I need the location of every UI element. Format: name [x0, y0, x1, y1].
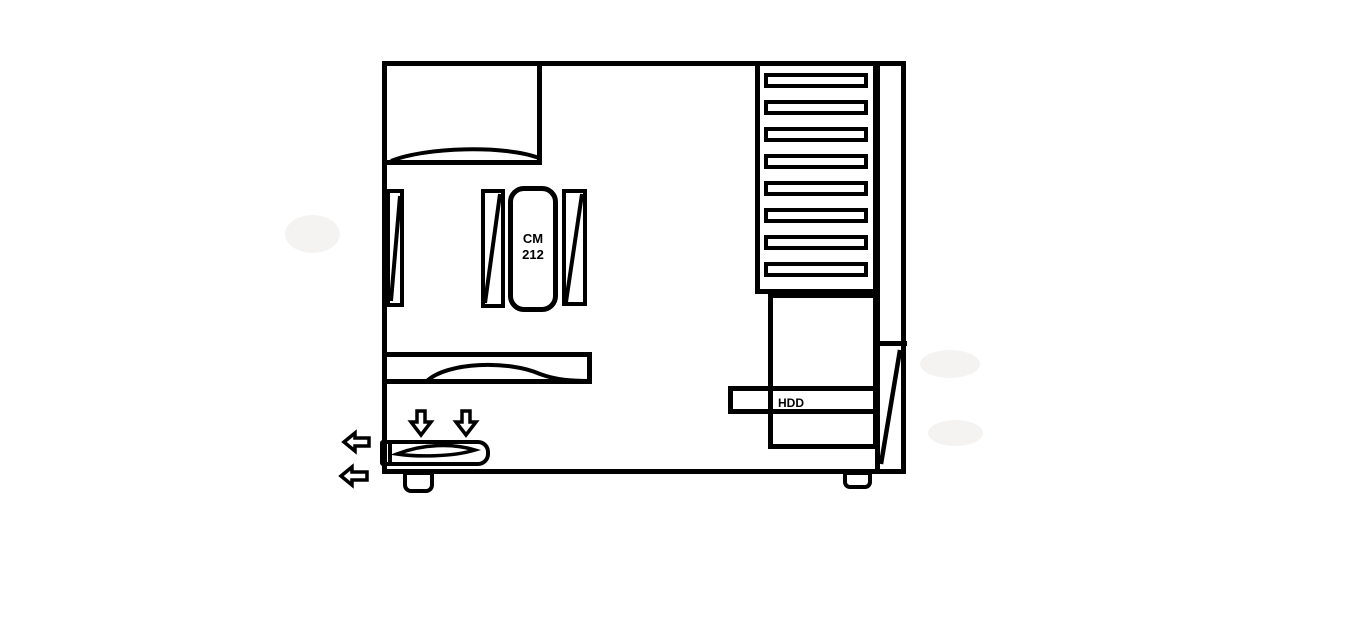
left-arrow-icon — [344, 433, 369, 451]
front-fan — [481, 189, 505, 308]
case-foot-right — [843, 471, 872, 489]
left-arrow-icon — [341, 467, 367, 485]
rear-fan — [562, 189, 587, 306]
hdd-cage — [768, 293, 878, 449]
hdd-label: HDD — [778, 396, 804, 410]
intake-slot — [380, 440, 490, 466]
bay-slat — [764, 208, 868, 223]
bay-slat — [764, 73, 868, 88]
bay-slat — [764, 181, 868, 196]
exhaust-vent — [386, 189, 404, 307]
bay-slat — [764, 154, 868, 169]
cooler-label: CM 212 — [508, 231, 558, 263]
case-foot-left — [403, 471, 434, 493]
drive-bay-rack — [755, 61, 878, 294]
bay-slat — [764, 235, 868, 250]
front-panel-notch — [877, 341, 907, 346]
eraser-smudge — [928, 420, 983, 446]
cooler-label-line2: 212 — [508, 247, 558, 263]
bay-slat — [764, 100, 868, 115]
bay-slat — [764, 262, 868, 277]
optical-bay-box — [382, 61, 542, 165]
intake-slot-divider — [388, 443, 392, 462]
front-panel-line — [875, 61, 880, 473]
eraser-smudge — [285, 215, 340, 253]
bay-slat — [764, 127, 868, 142]
cooler-label-line1: CM — [508, 231, 558, 247]
paint-canvas: CM 212 HDD — [0, 0, 1354, 620]
gpu-bar — [382, 352, 592, 384]
eraser-smudge — [920, 350, 980, 378]
